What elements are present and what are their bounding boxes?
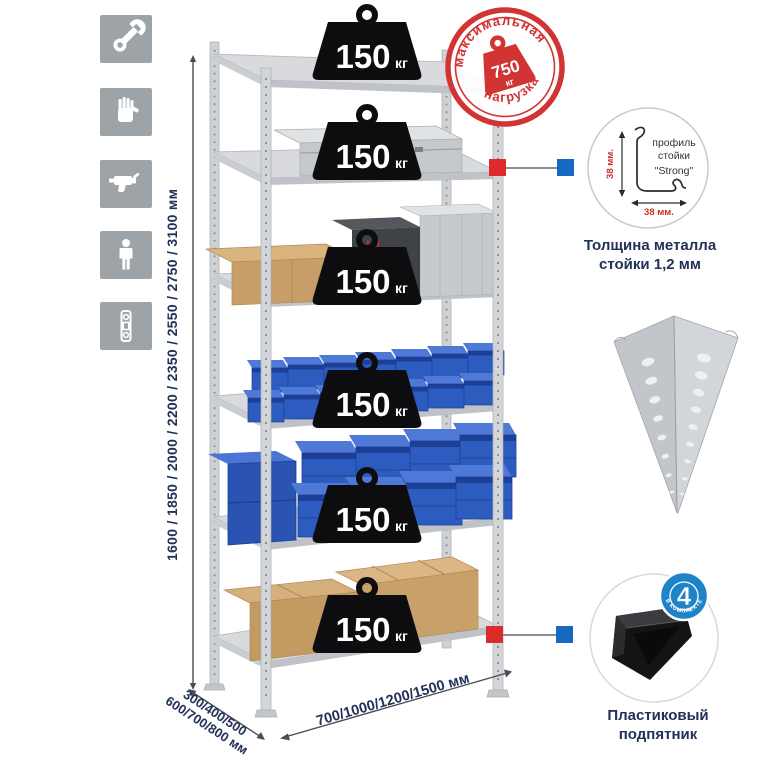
svg-text:38 мм.: 38 мм. [605, 149, 616, 179]
max-load-stamp: максимальная нагрузка 750 кг [440, 2, 570, 132]
included-count-badge: 4 штуки в комплекте [660, 572, 708, 620]
svg-text:стойки: стойки [658, 150, 690, 162]
red-marker-bottom [486, 626, 503, 643]
profile-callout [489, 159, 574, 176]
blue-marker-bottom [556, 626, 573, 643]
foot-caption: Пластиковый подпятник [578, 706, 738, 744]
corner-post-image [598, 298, 758, 536]
profile-caption: Толщина металла стойки 1,2 мм [575, 236, 725, 274]
foot-caption-line2: подпятник [578, 725, 738, 744]
svg-text:4: 4 [677, 581, 692, 611]
post-profile-detail: 38 мм. 38 мм. профиль стойки "Strong" [586, 106, 710, 230]
plastic-foot-detail: 4 штуки в комплекте [588, 568, 728, 708]
foot-caption-line1: Пластиковый [578, 706, 738, 725]
blue-marker-top [557, 159, 574, 176]
height-dimension-line [190, 55, 196, 690]
svg-text:38 мм.: 38 мм. [644, 207, 674, 218]
profile-caption-line2: стойки 1,2 мм [575, 255, 725, 274]
svg-text:профиль: профиль [652, 137, 696, 149]
profile-caption-line1: Толщина металла [575, 236, 725, 255]
red-marker-top [489, 159, 506, 176]
foot-callout [486, 626, 573, 643]
svg-text:"Strong": "Strong" [655, 165, 694, 177]
page: 1600 / 1850 / 2000 / 2200 / 2350 / 2550 … [0, 0, 765, 765]
